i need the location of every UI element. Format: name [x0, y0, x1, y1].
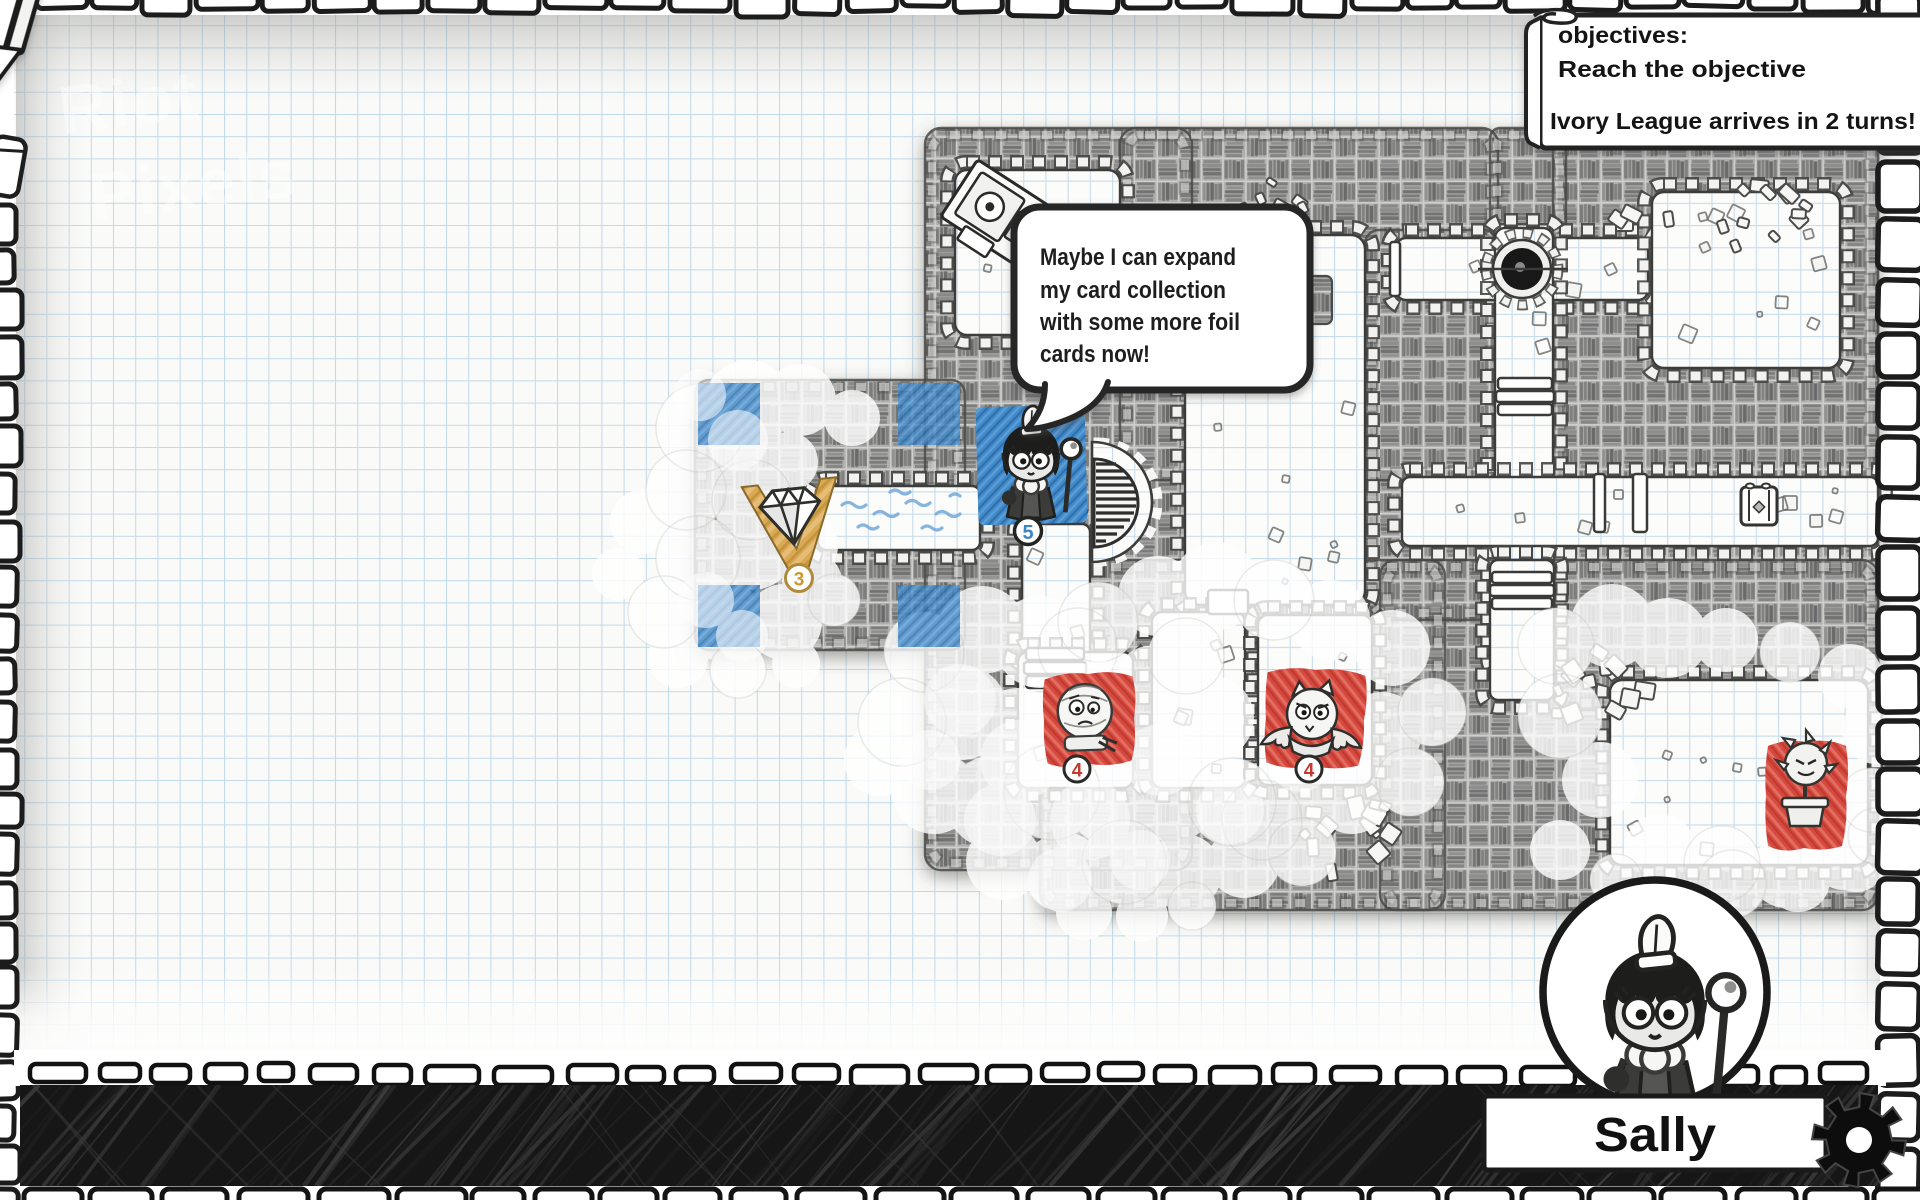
- svg-text:Maybe I can expand: Maybe I can expand: [1040, 244, 1236, 271]
- svg-text:with some more foil: with some more foil: [1039, 309, 1240, 336]
- svg-text:objectives:: objectives:: [1558, 22, 1688, 48]
- svg-text:4: 4: [1072, 761, 1083, 782]
- svg-text:3: 3: [794, 570, 805, 591]
- svg-text:cards now!: cards now!: [1040, 341, 1150, 368]
- svg-text:5: 5: [1022, 522, 1033, 544]
- svg-text:Reach the objective: Reach the objective: [1558, 56, 1806, 82]
- svg-text:my card collection: my card collection: [1040, 277, 1226, 304]
- svg-text:Sally: Sally: [1594, 1109, 1716, 1162]
- svg-text:Ivory League arrives in 2 turn: Ivory League arrives in 2 turns!: [1550, 108, 1916, 134]
- svg-text:4: 4: [1304, 761, 1315, 782]
